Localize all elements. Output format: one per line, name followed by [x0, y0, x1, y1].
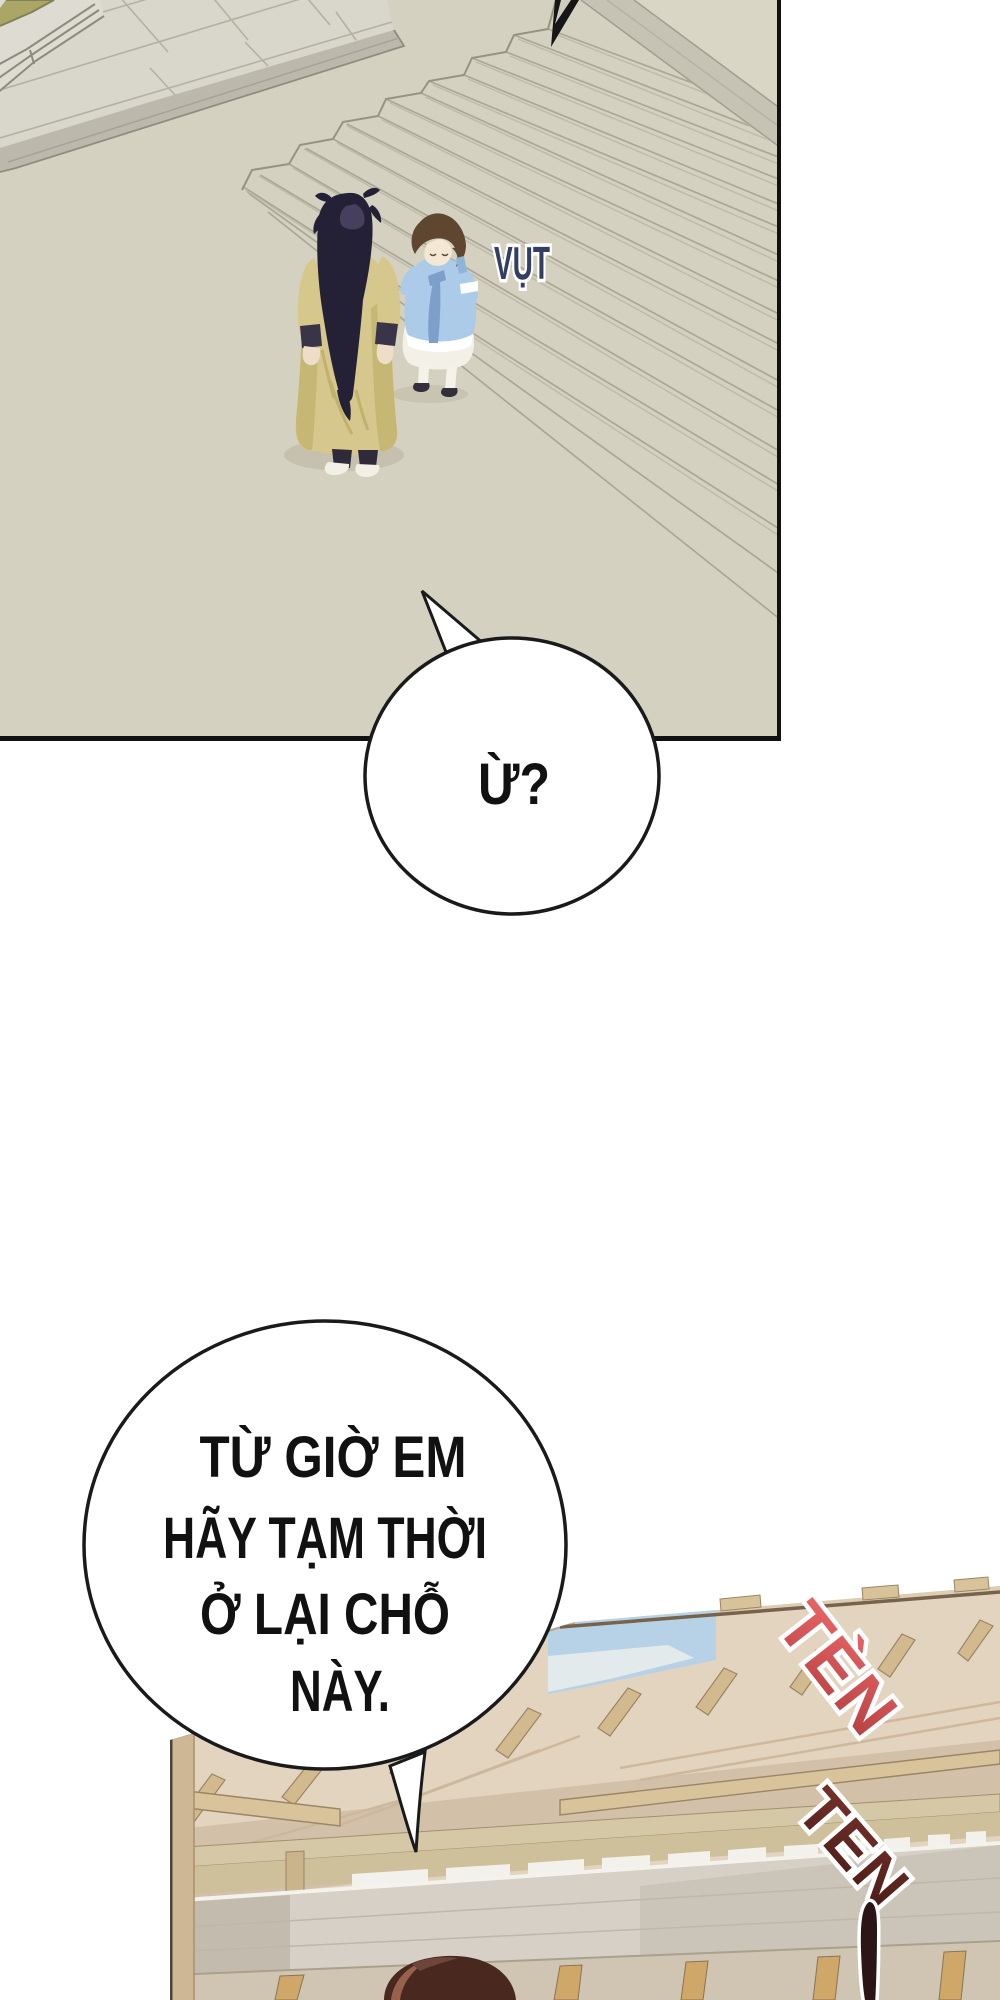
svg-text:NÀY.: NÀY.	[290, 1659, 390, 1724]
svg-text:VỤT: VỤT	[494, 237, 550, 289]
svg-text:HÃY TẠM THỜI: HÃY TẠM THỜI	[163, 1506, 487, 1571]
svg-text:TỪ GIỜ EM: TỪ GIỜ EM	[200, 1425, 467, 1490]
svg-text:Ở LẠI CHỖ: Ở LẠI CHỖ	[200, 1582, 450, 1647]
svg-text:Ừ?: Ừ?	[478, 752, 550, 817]
